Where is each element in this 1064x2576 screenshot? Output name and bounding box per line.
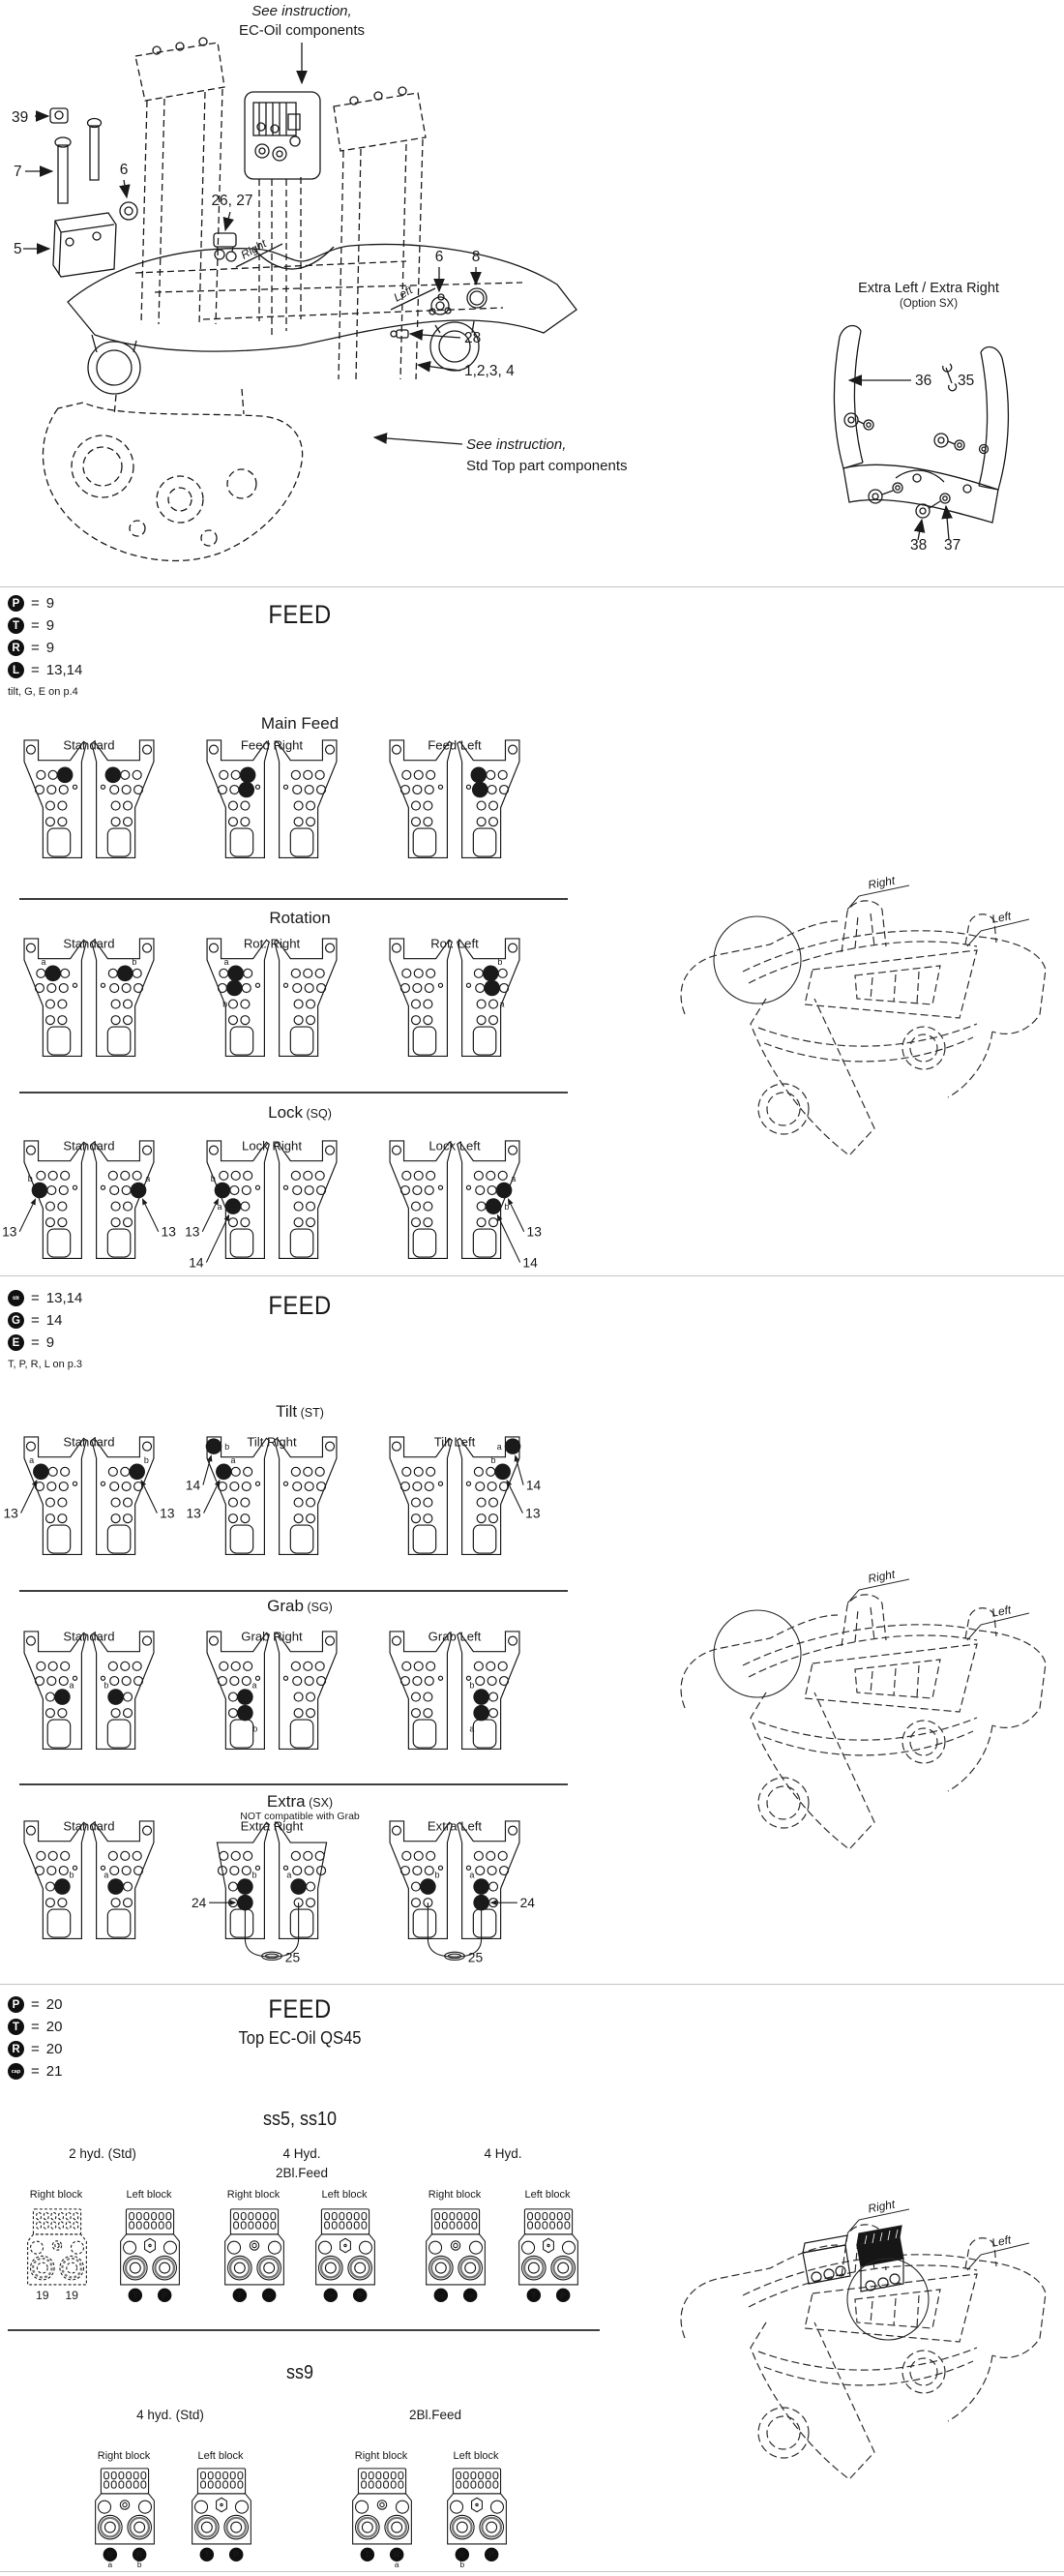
- part-bolt-28: [391, 330, 408, 338]
- legend-row: T=20: [8, 2016, 62, 2038]
- group-label: Standard: [63, 1630, 114, 1644]
- port-sub-label: a: [469, 1723, 474, 1733]
- port-sub-label: b: [224, 1442, 229, 1452]
- left-plate: [390, 939, 452, 1056]
- part-oring-8: [467, 288, 487, 308]
- section-title-tilt: Tilt (ST): [106, 1402, 493, 1422]
- std-note-line1: See instruction,: [466, 436, 566, 453]
- group-label: Standard: [63, 937, 114, 951]
- left-plate: [390, 1632, 452, 1749]
- connector-outline: [316, 2209, 375, 2285]
- std-note-line2: Std Top part components: [466, 458, 628, 474]
- section-title-suffix: (ST): [297, 1406, 324, 1420]
- callout-6a: 6: [120, 162, 129, 178]
- coupler-frame-sketch: [681, 901, 1046, 1155]
- config-group-tilt-right: Tilt Right14tiltb13tilta: [185, 1420, 359, 1590]
- svg-text:tilt: tilt: [221, 1470, 226, 1476]
- port-sub-label: a: [395, 2560, 399, 2569]
- ecoil-drop-lines: [259, 177, 301, 335]
- hose-callout-25: 25: [285, 1951, 301, 1965]
- svg-text:L: L: [135, 1185, 141, 1196]
- config-group-tilt-left: Tilt Left14tilta13tiltb: [368, 1420, 542, 1590]
- svg-text:E: E: [112, 1882, 119, 1893]
- legend-equals: =: [31, 1334, 40, 1351]
- part-block-5: [53, 213, 116, 277]
- group-label: Tilt Right: [247, 1435, 297, 1450]
- svg-text:G: G: [59, 1692, 67, 1703]
- section-title-grab: Grab (SG): [106, 1597, 493, 1616]
- config-group-extra-left: Extra Left25EbEa24E: [368, 1804, 542, 1974]
- svg-text:P: P: [560, 2291, 566, 2300]
- extra-option-figure: 36 35 38 37: [803, 312, 1054, 565]
- svg-text:P: P: [110, 770, 117, 781]
- port-callout-14: 14: [526, 1478, 542, 1492]
- legend-row: P=9: [8, 592, 82, 614]
- right-plate: [458, 1821, 519, 1938]
- left-plate: [390, 1821, 452, 1938]
- qs-side-label-right-block: Right block: [355, 2450, 407, 2462]
- ec-oil-block: [245, 92, 320, 179]
- legend-row: R=20: [8, 2038, 62, 2060]
- legend-row: cap=21: [8, 2060, 62, 2082]
- connector-outline: [96, 2469, 155, 2544]
- svg-text:P: P: [162, 2291, 167, 2300]
- port-callout-13: 13: [185, 1225, 200, 1240]
- hydraulic-block-right-block: Tcap: [219, 2206, 290, 2310]
- svg-text:T: T: [531, 2291, 537, 2300]
- callout-28: 28: [464, 330, 481, 346]
- port-sub-label: b: [211, 1174, 216, 1183]
- group-label: Standard: [63, 1139, 114, 1153]
- qs-column-header: 4 Hyd.: [282, 2146, 320, 2161]
- right-plate: [275, 1437, 337, 1554]
- legend-equals: =: [31, 1312, 40, 1329]
- qs-side-label-right-block: Right block: [30, 2189, 82, 2201]
- group-label: Rot. Right: [244, 937, 301, 951]
- config-group-extra-right: Extra Right25Eb24EEa: [185, 1804, 359, 1974]
- svg-text:cap: cap: [437, 2293, 445, 2298]
- svg-text:E: E: [478, 1899, 485, 1909]
- legend-value: 20: [46, 2019, 63, 2035]
- port-sub-label: a: [511, 1174, 516, 1183]
- legend-row: P=20: [8, 1993, 62, 2016]
- connector-outline: [192, 2469, 251, 2544]
- part-coupling-6b: [429, 294, 451, 315]
- right-plate: [275, 740, 337, 857]
- detail-highlight-circle: [714, 1610, 801, 1697]
- port-sub-label: b: [132, 957, 136, 967]
- port-sub-label: a: [252, 1681, 257, 1691]
- port-sub-label: a: [230, 1455, 235, 1465]
- callout-1-2-3-4: 1,2,3, 4: [464, 363, 515, 379]
- callout-39: 39: [12, 109, 28, 126]
- section-title-text: Lock: [268, 1103, 303, 1122]
- port-callout-13: 13: [2, 1225, 17, 1240]
- left-plate: [207, 1632, 269, 1749]
- group-label: Lock Right: [242, 1139, 302, 1153]
- svg-text:E: E: [242, 1899, 249, 1909]
- legend-value: 14: [46, 1312, 63, 1329]
- callout-37: 37: [944, 537, 961, 554]
- iso-left-label: Left: [990, 909, 1013, 926]
- ecoil-note-line2: EC-Oil components: [239, 22, 365, 39]
- hydraulic-block-right-block: RRab: [89, 2466, 161, 2569]
- post-left: [135, 38, 224, 324]
- port-sub-label: b: [435, 1871, 440, 1880]
- svg-text:E: E: [425, 1882, 431, 1893]
- legend-row: T=9: [8, 614, 82, 637]
- left-plate: [24, 1437, 86, 1554]
- svg-text:T: T: [62, 770, 68, 781]
- hydraulic-block-right-block: 1919: [21, 2206, 93, 2310]
- group-label: Rot. Left: [430, 937, 479, 951]
- svg-text:P: P: [357, 2291, 363, 2300]
- port-sub-label: a: [286, 1871, 291, 1880]
- group-label: Lock Left: [429, 1139, 481, 1153]
- wrench-icon: [943, 364, 957, 391]
- std-note-leader: [374, 437, 462, 444]
- section-title-suffix: (SG): [304, 1601, 333, 1614]
- right-plate: [92, 1141, 154, 1258]
- svg-text:R: R: [488, 983, 495, 994]
- left-plate: [24, 1821, 86, 1938]
- svg-text:P: P: [244, 785, 251, 795]
- connector-outline: [448, 2469, 507, 2544]
- right-plate: [92, 1437, 154, 1554]
- legend-row: L=13,14: [8, 659, 82, 681]
- left-plate: [24, 939, 86, 1056]
- config-group-grab-right: Grab RightGaGb: [185, 1614, 359, 1784]
- section-divider-2: [19, 1092, 568, 1093]
- section-divider-3: [19, 1590, 568, 1592]
- svg-text:T: T: [204, 2550, 210, 2560]
- page-separator-3: [0, 1984, 1064, 1985]
- callout-6a-leader: [124, 180, 127, 197]
- port-sub-label: b: [103, 1681, 108, 1691]
- group-label: Feed Left: [428, 738, 482, 753]
- callout-8: 8: [472, 249, 481, 265]
- hydraulic-block-left-block: RPb: [441, 2466, 513, 2569]
- connector-outline: [225, 2209, 284, 2285]
- port-number-label: 19: [65, 2289, 78, 2302]
- callout-7: 7: [14, 164, 22, 180]
- qs-column-header-line2: 2Bl.Feed: [276, 2166, 328, 2180]
- extra-option-title: Extra Left / Extra Right: [793, 281, 1064, 296]
- group-label: Grab Right: [241, 1630, 303, 1644]
- svg-text:T: T: [237, 2291, 243, 2300]
- right-plate: [275, 1632, 337, 1749]
- svg-text:R: R: [136, 2550, 143, 2560]
- right-plate: [458, 939, 519, 1056]
- qs-column-header: 2 hyd. (Std): [69, 2146, 136, 2161]
- svg-text:tilt: tilt: [38, 1470, 44, 1476]
- right-plate: [458, 1437, 519, 1554]
- callout-36: 36: [915, 373, 931, 389]
- port-sub-label: a: [469, 1871, 474, 1880]
- legend-badge-p: P: [8, 1996, 24, 2013]
- feed-subtitle: Top EC-Oil QS45: [184, 2028, 415, 2049]
- svg-text:T: T: [477, 785, 483, 795]
- port-sub-label: b: [504, 1202, 509, 1212]
- svg-text:G: G: [242, 1709, 250, 1720]
- left-plate: [207, 740, 269, 857]
- legend-equals: =: [31, 1996, 40, 2013]
- port-sub-label: a: [42, 957, 46, 967]
- port-callout-13: 13: [3, 1506, 18, 1520]
- technical-drawing-page: See instruction, EC-Oil components: [0, 0, 1064, 2576]
- svg-text:tilt: tilt: [211, 1444, 217, 1450]
- port-callout-14: 14: [186, 1478, 201, 1492]
- svg-text:E: E: [242, 1882, 249, 1893]
- qs-side-label-right-block: Right block: [429, 2189, 481, 2201]
- port-sub-label: a: [218, 1202, 222, 1212]
- port-sub-label: a: [224, 957, 229, 967]
- config-group-standard: Standard13Lb13La: [2, 1123, 176, 1294]
- iso-left-label: Left: [990, 1603, 1013, 1620]
- svg-text:R: R: [394, 2550, 400, 2560]
- legend-value: 21: [46, 2063, 63, 2080]
- config-group-grab-left: Grab LeftGbGa: [368, 1614, 542, 1784]
- group-label: Tilt Left: [434, 1435, 476, 1450]
- legend-row: E=9: [8, 1332, 82, 1354]
- config-group-lock-left: Lock Left13La14Lb: [368, 1123, 542, 1294]
- port-sub-label: a: [500, 999, 505, 1008]
- iso-left-label: Left: [990, 2232, 1013, 2250]
- legend-badge-e: E: [8, 1334, 24, 1351]
- legend-equals: =: [31, 640, 40, 656]
- left-plate: [390, 1141, 452, 1258]
- section-divider-5: [8, 2329, 600, 2331]
- iso-reference-view-1: RightLeft: [658, 852, 1064, 1229]
- svg-text:T: T: [245, 770, 251, 781]
- group-label: Standard: [63, 1819, 114, 1834]
- legend-value: 9: [46, 595, 54, 612]
- svg-text:P: P: [476, 770, 483, 781]
- part-nut-39: [50, 108, 68, 123]
- config-group-standard: StandardEbEa: [2, 1804, 176, 1974]
- legend-badge-l: L: [8, 662, 24, 678]
- base-assembly: [43, 389, 302, 560]
- right-plate: [92, 1821, 154, 1938]
- port-sub-label: b: [28, 1174, 33, 1183]
- hose-callout-25: 25: [468, 1951, 484, 1965]
- svg-text:tilt: tilt: [500, 1470, 506, 1476]
- svg-text:L: L: [490, 1202, 496, 1213]
- qs-column-header: 4 Hyd.: [484, 2146, 521, 2161]
- port-sub-label: b: [252, 1871, 257, 1880]
- port-callout-13: 13: [525, 1506, 541, 1520]
- hydraulic-block-left-block: TP: [513, 2206, 584, 2310]
- feed-legend-2: tilt=13,14G=14E=9T, P, R, L on p.3: [8, 1287, 82, 1370]
- svg-text:E: E: [295, 1882, 302, 1893]
- connector-outline: [121, 2209, 180, 2285]
- hydraulic-block-right-block: capcap: [420, 2206, 491, 2310]
- config-group-lock-right: Lock Right13Lb14La: [185, 1123, 359, 1294]
- svg-text:tilt: tilt: [134, 1470, 140, 1476]
- page-separator-4: [0, 2571, 1064, 2572]
- hydraulic-block-left-block: capP: [310, 2206, 381, 2310]
- ecoil-note-line1: See instruction,: [251, 3, 351, 19]
- part-washer-6a: [120, 202, 137, 220]
- svg-text:R: R: [107, 2550, 114, 2560]
- port-sub-label: b: [491, 1455, 496, 1465]
- qs-side-label-left-block: Left block: [524, 2189, 570, 2201]
- group-label: Extra Left: [428, 1819, 482, 1834]
- svg-text:E: E: [478, 1882, 485, 1893]
- legend-badge-p: P: [8, 595, 24, 612]
- connector-outline: [519, 2209, 578, 2285]
- legend-equals: =: [31, 2019, 40, 2035]
- port-sub-label: a: [108, 2560, 113, 2569]
- legend-value: 20: [46, 2041, 63, 2057]
- right-plate: [275, 1141, 337, 1258]
- qs-side-label-left-block: Left block: [321, 2189, 367, 2201]
- legend-value: 20: [46, 1996, 63, 2013]
- qs-side-label-left-block: Left block: [126, 2189, 171, 2201]
- port-callout-13: 13: [527, 1225, 542, 1240]
- section-groups-tilt: Standard13tilta13tiltbTilt Right14tiltb1…: [2, 1420, 542, 1590]
- config-group-standard: StandardRaRb: [2, 921, 176, 1092]
- section-groups-lock: Standard13Lb13LaLock Right13Lb14LaLock L…: [2, 1123, 542, 1294]
- section-title-suffix: (SQ): [303, 1107, 332, 1121]
- coupler-frame-sketch: [681, 1595, 1046, 1849]
- port-sub-label: a: [145, 1174, 150, 1183]
- svg-text:P: P: [233, 2550, 239, 2560]
- hydraulic-block-left-block: TP: [114, 2206, 186, 2310]
- legend-badge-g: G: [8, 1312, 24, 1329]
- svg-text:G: G: [112, 1692, 120, 1703]
- svg-text:P: P: [488, 2550, 494, 2560]
- port-callout-24: 24: [192, 1896, 207, 1910]
- config-group-feed-right: Feed RightTP: [185, 723, 359, 893]
- section-title-text: Grab: [267, 1597, 304, 1615]
- port-sub-label: a: [497, 1442, 502, 1452]
- svg-text:L: L: [230, 1202, 236, 1213]
- port-sub-label: b: [70, 1871, 74, 1880]
- port-sub-label: b: [222, 999, 227, 1008]
- svg-text:R: R: [122, 969, 129, 979]
- legend-value: 9: [46, 617, 54, 634]
- qs-side-label-right-block: Right block: [98, 2450, 150, 2462]
- legend-note: tilt, G, E on p.4: [8, 686, 82, 698]
- left-plate: [24, 740, 86, 857]
- legend-value: 9: [46, 1334, 54, 1351]
- config-group-standard: StandardGaGb: [2, 1614, 176, 1784]
- left-plate: [24, 1141, 86, 1258]
- port-sub-label: b: [497, 957, 502, 967]
- svg-text:T: T: [365, 2550, 370, 2560]
- svg-text:R: R: [488, 969, 494, 979]
- detail-highlight-circle: [714, 916, 801, 1003]
- right-plate: [92, 1632, 154, 1749]
- port-sub-label: b: [460, 2560, 465, 2569]
- port-sub-label: b: [144, 1455, 149, 1465]
- legend-equals: =: [31, 2063, 40, 2080]
- legend-badge-cap: cap: [8, 2063, 24, 2080]
- svg-text:G: G: [242, 1692, 250, 1703]
- legend-equals: =: [31, 617, 40, 634]
- legend-badge-r: R: [8, 2041, 24, 2057]
- port-sub-label: a: [70, 1681, 74, 1691]
- page-separator-1: [0, 586, 1064, 587]
- group-label: Extra Right: [241, 1819, 304, 1834]
- svg-text:cap: cap: [466, 2293, 474, 2298]
- svg-text:T: T: [133, 2291, 138, 2300]
- svg-text:cap: cap: [265, 2293, 273, 2298]
- config-group-standard: Standard13tilta13tiltb: [2, 1420, 176, 1590]
- group-label: Feed Right: [241, 738, 303, 753]
- svg-text:R: R: [232, 969, 239, 979]
- left-plate: [390, 1437, 452, 1554]
- right-plate: [275, 939, 337, 1056]
- svg-text:L: L: [220, 1185, 225, 1196]
- section-title-lock: Lock (SQ): [106, 1103, 493, 1123]
- svg-text:cap: cap: [327, 2293, 335, 2298]
- group-label: Grab Left: [429, 1630, 482, 1644]
- qs-title-ss9: ss9: [286, 2362, 313, 2384]
- qs-side-label-right-block: Right block: [227, 2189, 280, 2201]
- legend-value: 13,14: [46, 662, 83, 678]
- feed-heading-2: FEED: [232, 1291, 369, 1321]
- config-group-rot-left: Rot. LeftRbRa: [368, 921, 542, 1092]
- section-groups-rotation: StandardRaRbRot. RightRaRbRot. LeftRbRa: [2, 921, 542, 1092]
- callout-5: 5: [14, 241, 22, 257]
- callout-26-27: 26, 27: [211, 193, 252, 209]
- svg-text:G: G: [478, 1692, 486, 1703]
- svg-text:L: L: [501, 1185, 507, 1196]
- legend-row: R=9: [8, 637, 82, 659]
- legend-equals: =: [31, 662, 40, 678]
- group-label: Standard: [63, 738, 114, 753]
- right-plate: [92, 939, 154, 1056]
- port-sub-label: b: [252, 1723, 257, 1733]
- port-sub-label: a: [29, 1455, 34, 1465]
- part-valve-26-27: [214, 233, 236, 261]
- svg-text:R: R: [49, 969, 56, 979]
- svg-text:R: R: [459, 2550, 466, 2560]
- left-plate: [207, 939, 269, 1056]
- section-title-text: Tilt: [276, 1402, 297, 1421]
- iso-reference-view-2: RightLeft: [658, 1545, 1064, 1923]
- group-label: Standard: [63, 1435, 114, 1450]
- qs-column-header: 2Bl.Feed: [409, 2408, 461, 2422]
- feed-legend-3: P=20T=20R=20cap=21: [8, 1993, 62, 2082]
- right-plate: [458, 740, 519, 857]
- left-plate: [24, 1632, 86, 1749]
- svg-text:R: R: [231, 983, 238, 994]
- qs-column-header: 4 hyd. (Std): [136, 2408, 204, 2422]
- right-plate: [458, 1632, 519, 1749]
- feed-heading-3: FEED: [232, 1994, 369, 2024]
- section-groups-grab: StandardGaGbGrab RightGaGbGrab LeftGbGa: [2, 1614, 542, 1784]
- legend-value: 9: [46, 640, 54, 656]
- callout-26-27-leader: [225, 212, 230, 230]
- left-plate: [207, 1437, 269, 1554]
- port-callout-14: 14: [522, 1255, 538, 1270]
- section-groups-main-feed: StandardTPFeed RightTPFeed LeftPT: [2, 723, 542, 893]
- port-number-label: 19: [36, 2289, 49, 2302]
- port-callout-13: 13: [162, 1225, 176, 1240]
- config-group-feed-left: Feed LeftPT: [368, 723, 542, 893]
- right-plate: [92, 740, 154, 857]
- port-callout-13: 13: [186, 1506, 201, 1520]
- legend-equals: =: [31, 595, 40, 612]
- qs-side-label-left-block: Left block: [197, 2450, 243, 2462]
- port-sub-label: b: [137, 2560, 142, 2569]
- extra-option-subtitle: (Option SX): [793, 298, 1064, 310]
- section-groups-extra: StandardEbEaExtra Right25Eb24EEaExtra Le…: [2, 1804, 542, 1974]
- connector-outline: [427, 2209, 486, 2285]
